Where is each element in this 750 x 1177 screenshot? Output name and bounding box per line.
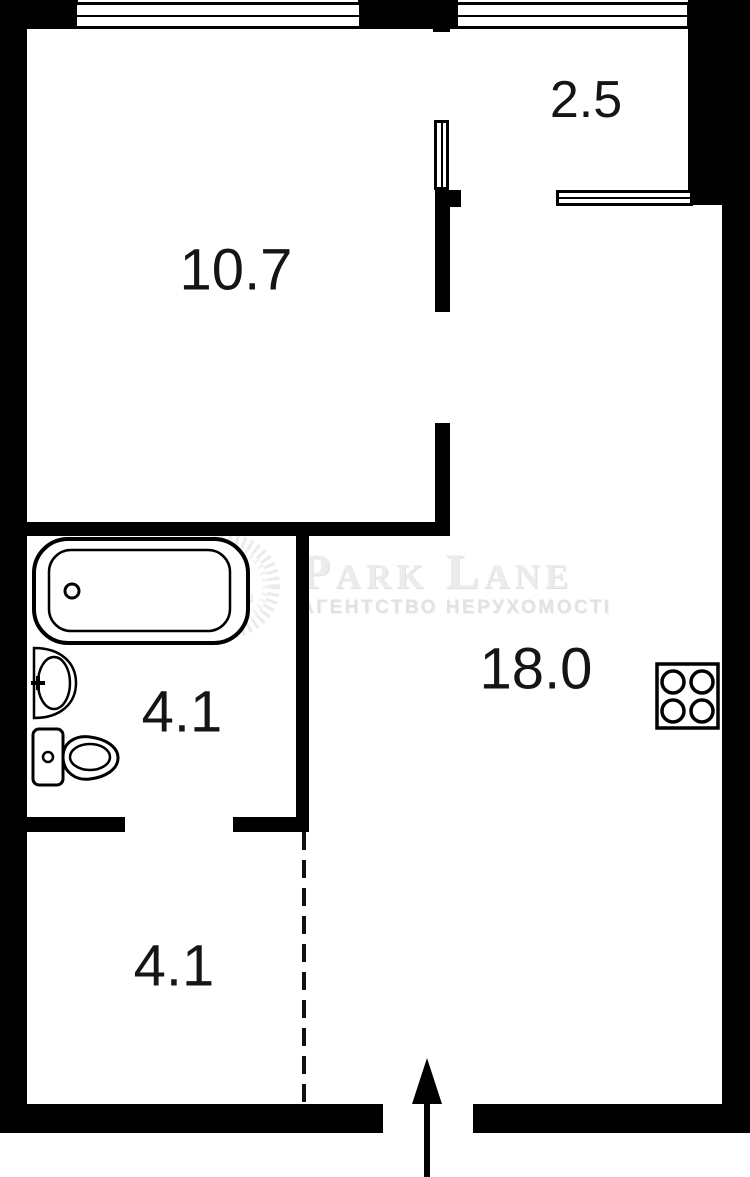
toilet-icon bbox=[30, 725, 125, 788]
wall-bottom-right bbox=[473, 1104, 750, 1133]
wall-balcony-divider-lower bbox=[435, 423, 450, 522]
entrance-arrow-icon bbox=[409, 1058, 445, 1177]
stove-icon bbox=[655, 662, 721, 731]
floor-plan: PL Park Lane АГЕНТСТВО НЕРУХОМОСТІ 10.7 … bbox=[0, 0, 750, 1177]
window-frame-line bbox=[441, 123, 443, 187]
sink-icon bbox=[28, 646, 82, 720]
window-frame-line bbox=[77, 15, 359, 17]
watermark-title: Park Lane bbox=[300, 548, 612, 594]
wall-left bbox=[0, 0, 27, 1133]
wall-balcony-right bbox=[688, 0, 750, 205]
wall-bathroom-right bbox=[296, 536, 309, 832]
window-balcony-top bbox=[455, 2, 690, 29]
room-area-label: 10.7 bbox=[180, 237, 293, 304]
window-top-left bbox=[74, 2, 362, 29]
watermark-text: Park Lane АГЕНТСТВО НЕРУХОМОСТІ bbox=[300, 548, 612, 619]
window-frame-line bbox=[559, 197, 690, 199]
wall-bottom-left bbox=[0, 1104, 383, 1133]
window-balcony-side bbox=[434, 120, 449, 190]
wall-balcony-divider-jamb bbox=[450, 190, 461, 207]
room-area-label: 18.0 bbox=[480, 636, 593, 703]
zone-divider-dashed-line bbox=[302, 832, 306, 1104]
room-area-label: 4.1 bbox=[142, 679, 223, 746]
room-area-label: 4.1 bbox=[134, 933, 215, 1000]
wall-balcony-divider-notch bbox=[433, 25, 450, 32]
wall-bathroom-bottom-right bbox=[233, 817, 309, 832]
wall-bathroom-bottom-left bbox=[27, 817, 125, 832]
window-balcony-inner bbox=[556, 190, 693, 206]
wall-balcony-divider-upper bbox=[435, 190, 450, 312]
bathtub-icon bbox=[31, 534, 253, 648]
wall-top-left bbox=[0, 0, 78, 29]
room-area-label: 2.5 bbox=[550, 70, 622, 130]
wall-right bbox=[722, 205, 750, 1133]
window-frame-line bbox=[458, 15, 687, 17]
watermark-subtitle: АГЕНТСТВО НЕРУХОМОСТІ bbox=[300, 597, 612, 619]
